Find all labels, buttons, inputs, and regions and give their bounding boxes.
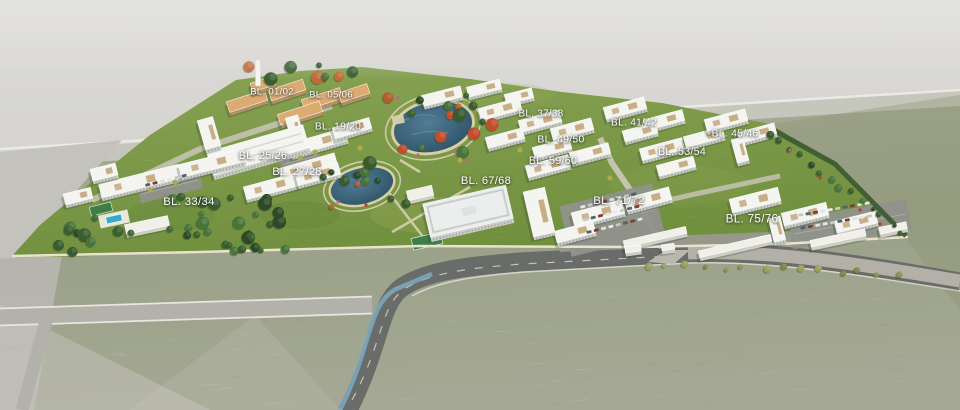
flower-bush [858, 208, 861, 211]
flower-bush [396, 96, 399, 99]
top-atmosphere-fade [0, 0, 960, 80]
flower-bush [818, 176, 821, 179]
flower-bush [336, 200, 339, 203]
flower-bush [453, 150, 456, 153]
flower-bush [364, 203, 367, 206]
flower-bush [466, 158, 469, 161]
flower-bush [788, 148, 791, 151]
site-render-canvas [0, 0, 960, 410]
ornamental-tree [457, 157, 462, 162]
masterplan-render: BL. 01/02BL. 05/06BL. 19/20BL. 25/26BL. … [0, 0, 960, 410]
ornamental-tree [172, 179, 177, 184]
flower-bush [878, 222, 881, 225]
ornamental-tree [297, 155, 302, 160]
flower-bush [416, 153, 419, 156]
ornamental-tree [607, 175, 612, 180]
ornamental-tree [312, 149, 317, 154]
ornamental-tree [357, 145, 362, 150]
ornamental-tree [147, 187, 152, 192]
ornamental-tree [517, 147, 522, 152]
